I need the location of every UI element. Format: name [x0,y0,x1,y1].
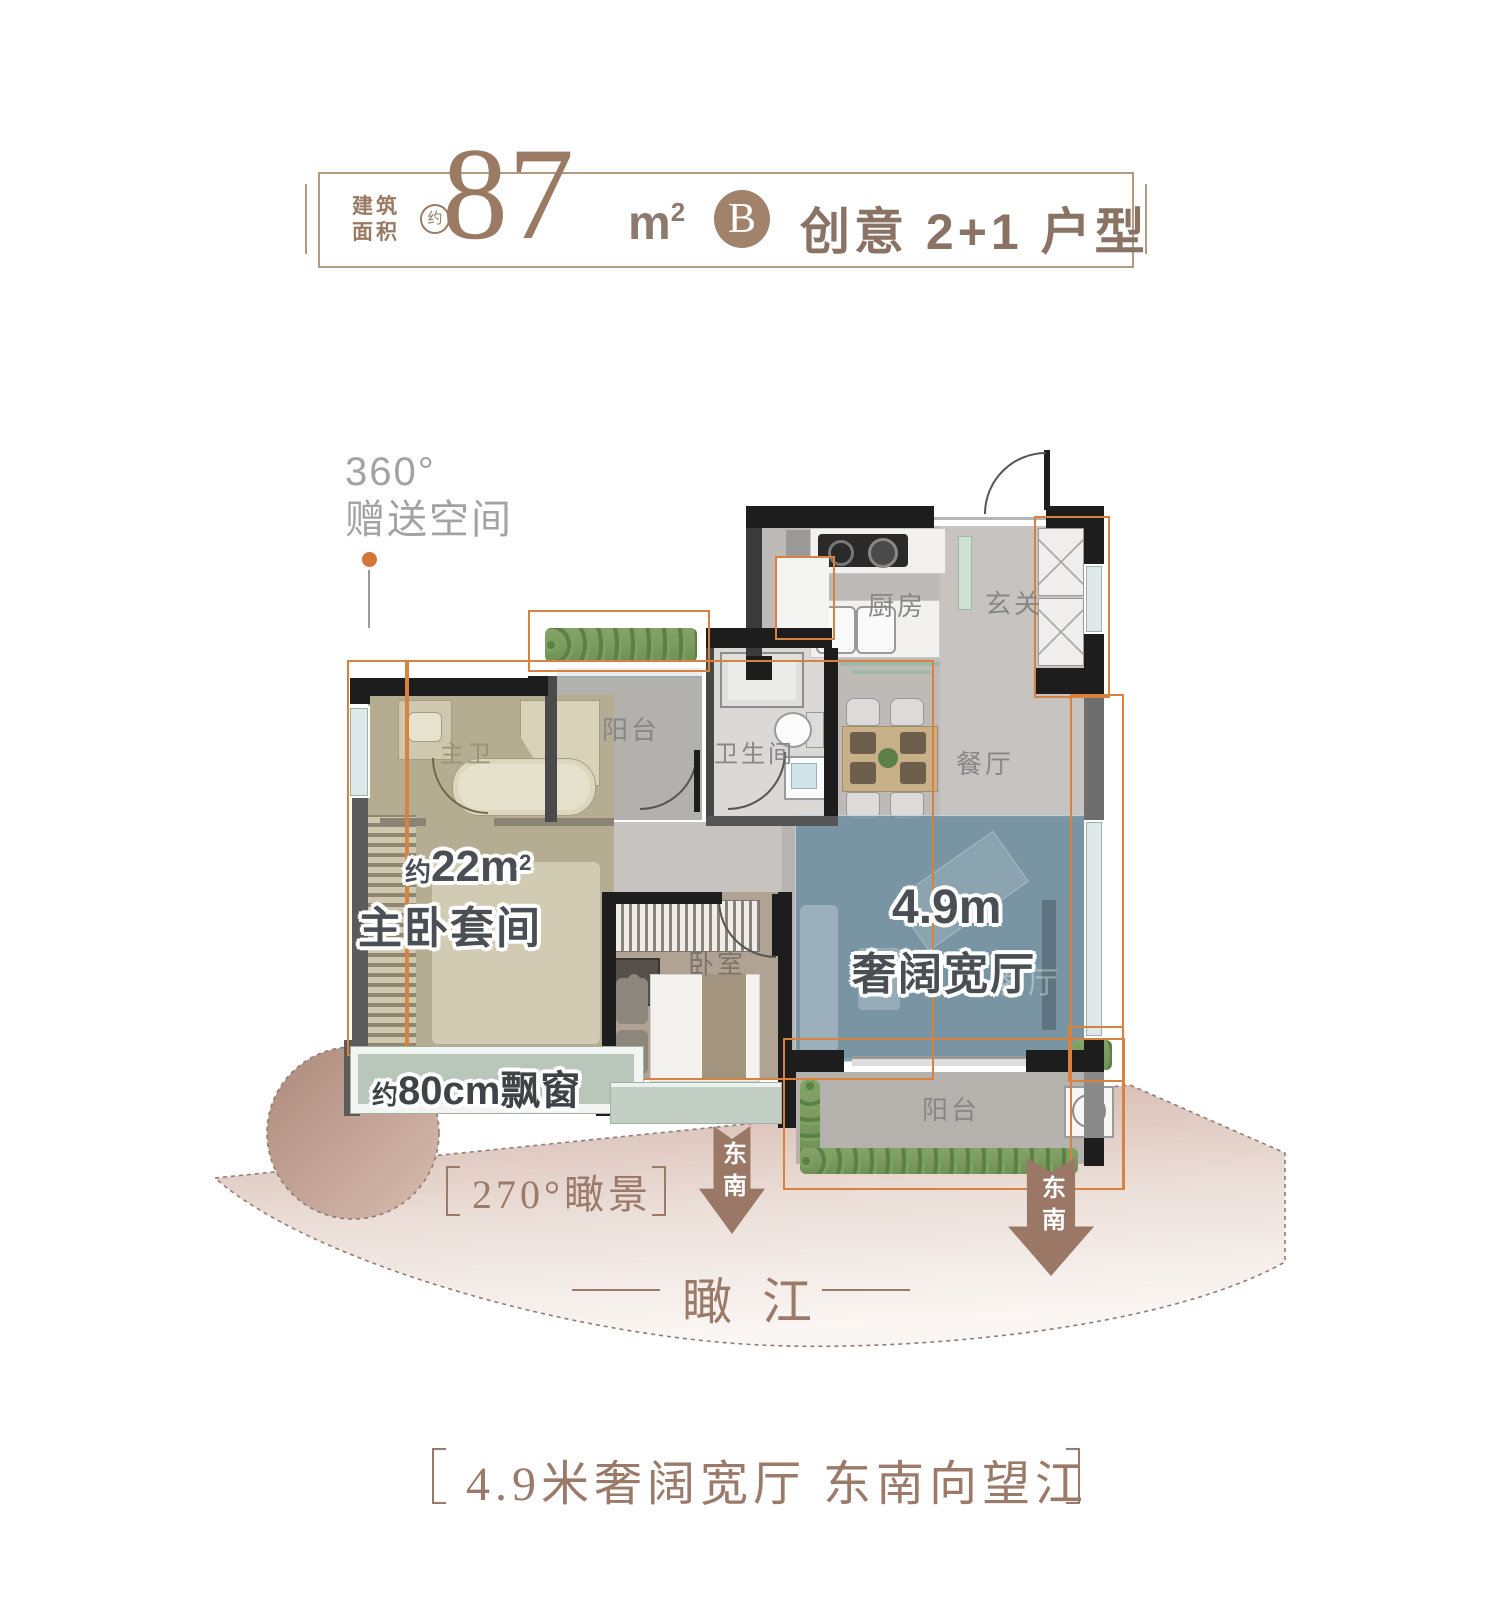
gift-note-line2: 赠送空间 [345,496,513,544]
southeast-arrow-2-label: 东南 [1034,1175,1069,1239]
footer-bracket-left [432,1448,446,1504]
bay-window-text: 80cm飘窗 [398,1069,580,1113]
view-bracket-left [446,1166,460,1216]
gift-outline-east-column [1070,694,1124,1190]
area-label-line2: 面积 [352,220,400,246]
footer-caption: 4.9米奢阔宽厅 东南向望江 [466,1444,1088,1514]
title-bracket-left [305,184,307,254]
type-title: 创意 2+1 户型 [800,192,1149,264]
view-bracket-right [652,1166,666,1216]
entry-label: 玄关 [985,584,1043,621]
kitchen-label: 厨房 [868,586,926,623]
gift-outline-kitchen [775,556,835,640]
burner-right [868,538,898,568]
leader-dot [362,552,377,567]
leader-line [368,570,370,628]
master-bath-label: 主卫 [440,734,494,769]
bedroom-label: 卧室 [688,944,746,981]
gift-outline-closet [1034,516,1110,698]
bay-window-approx: 约 [372,1080,398,1110]
footer-bracket-right [1066,1448,1080,1504]
bedroom-bay-window [610,1082,782,1124]
kitchen-cabinet-strip [958,536,972,610]
master-area-sup: 2 [519,850,531,875]
gift-note-line1: 360° [345,448,513,496]
area-label: 建筑 面积 [352,194,400,246]
river-dash-left [572,1289,660,1291]
area-unit-base: m [628,197,671,250]
master-area-value: 22m [431,842,519,891]
area-unit: m2 [628,196,685,251]
view-270-label: 270°瞰景 [472,1162,652,1220]
river-label-left: 瞰 [682,1262,732,1334]
type-badge: B [714,190,770,248]
master-area-label: 约22m2 [405,842,531,892]
entry-door-opening [934,517,1046,520]
southeast-arrow-1-label: 东南 [715,1141,750,1205]
area-label-line1: 建筑 [352,194,400,220]
river-dash-right [822,1289,910,1291]
master-area-approx: 约 [405,857,431,887]
river-label-right: 江 [762,1262,812,1334]
gift-outline-west [347,660,409,1056]
wall-kitchen-top [746,506,934,528]
living-name-label: 奢阔宽厅 [852,938,1036,1002]
area-unit-sup: 2 [671,197,685,227]
area-number: 87 [442,128,574,260]
entry-door-arc [984,452,1046,514]
living-width-label: 4.9m [892,880,1001,935]
master-name-label: 主卧套间 [358,892,542,956]
bathroom-label: 卫生间 [714,734,795,769]
gift-space-note: 360° 赠送空间 [345,448,513,544]
balcony-top-label: 阳台 [602,710,660,747]
balcony-bottom-label: 阳台 [922,1090,980,1127]
bay-window-label: 约80cm飘窗 [372,1058,580,1116]
dining-label: 餐厅 [956,744,1014,781]
